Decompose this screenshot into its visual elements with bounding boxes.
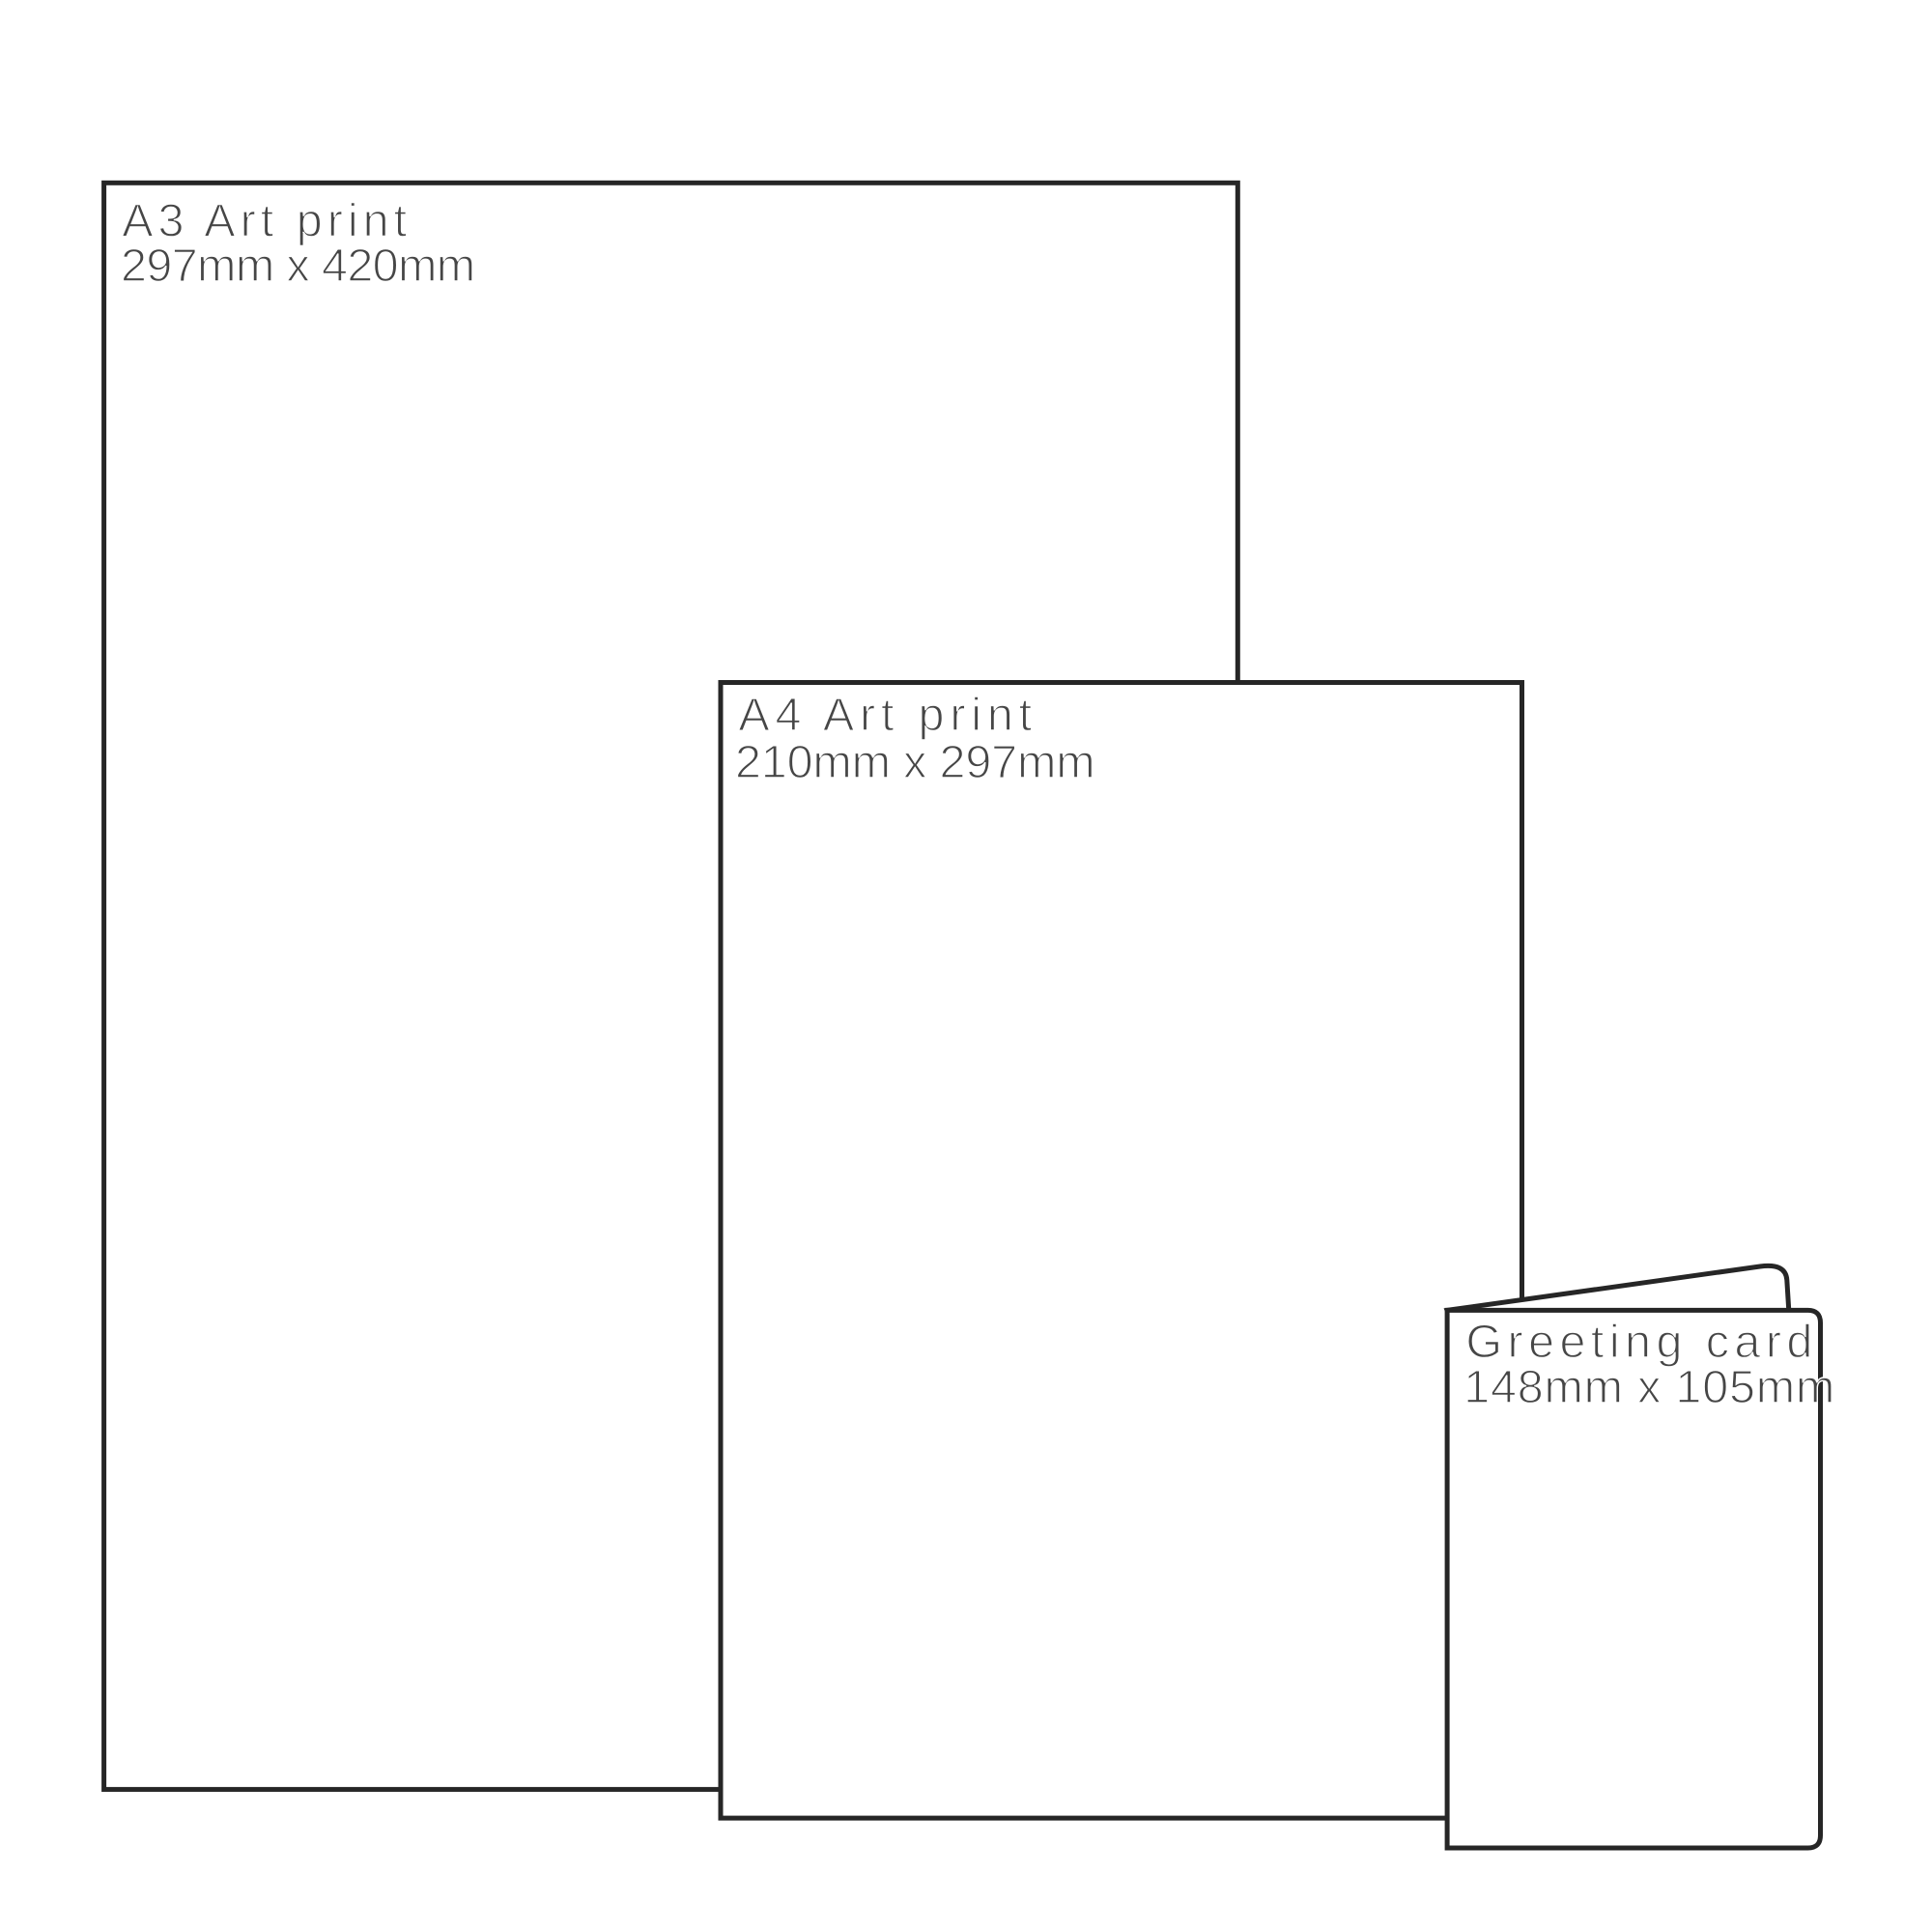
svg-text:Greeting card: Greeting card (1465, 1316, 1817, 1368)
svg-text:148mm x 105mm: 148mm x 105mm (1463, 1361, 1835, 1413)
svg-text:297mm x 420mm: 297mm x 420mm (121, 240, 475, 292)
svg-text:210mm x 297mm: 210mm x 297mm (735, 736, 1094, 788)
svg-text:A4 Art print: A4 Art print (738, 689, 1037, 741)
